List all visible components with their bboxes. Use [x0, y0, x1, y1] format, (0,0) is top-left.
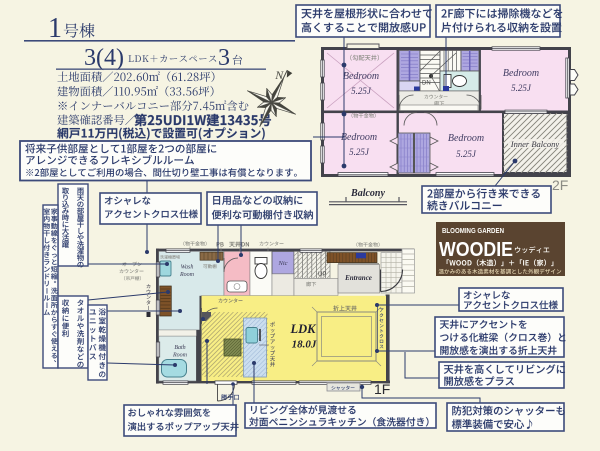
- svg-text:3(4): 3(4): [84, 45, 124, 71]
- svg-text:5.25J: 5.25J: [511, 83, 532, 93]
- svg-text:Bedroom: Bedroom: [503, 68, 539, 79]
- svg-text:1: 1: [48, 13, 62, 44]
- svg-text:3: 3: [218, 45, 230, 71]
- svg-text:Entrance: Entrance: [344, 274, 372, 282]
- svg-text:UP: UP: [318, 272, 326, 278]
- svg-text:Balcony: Balcony: [350, 188, 385, 199]
- svg-text:Nic: Nic: [277, 260, 287, 267]
- svg-text:5.25J: 5.25J: [351, 86, 372, 96]
- svg-text:LDK: LDK: [290, 322, 318, 336]
- svg-text:WOODIE: WOODIE: [439, 239, 513, 261]
- svg-text:Wash: Wash: [181, 265, 194, 271]
- svg-text:BLOOMING GARDEN: BLOOMING GARDEN: [442, 228, 504, 235]
- svg-text:2F: 2F: [552, 177, 568, 193]
- svg-text:N: N: [274, 68, 284, 82]
- svg-text:1F: 1F: [374, 381, 390, 397]
- svg-text:5.25J: 5.25J: [456, 149, 477, 159]
- svg-text:Bedroom: Bedroom: [343, 71, 379, 82]
- svg-text:Inner Balcony: Inner Balcony: [510, 139, 560, 149]
- svg-text:18.0J: 18.0J: [292, 339, 317, 351]
- svg-text:DN: DN: [422, 81, 431, 87]
- svg-text:Bedroom: Bedroom: [448, 133, 484, 144]
- svg-text:Room: Room: [172, 353, 188, 359]
- svg-text:Bedroom: Bedroom: [341, 132, 377, 143]
- svg-text:Room: Room: [179, 272, 195, 278]
- svg-text:5.25J: 5.25J: [349, 147, 370, 157]
- svg-text:Bath: Bath: [174, 345, 185, 351]
